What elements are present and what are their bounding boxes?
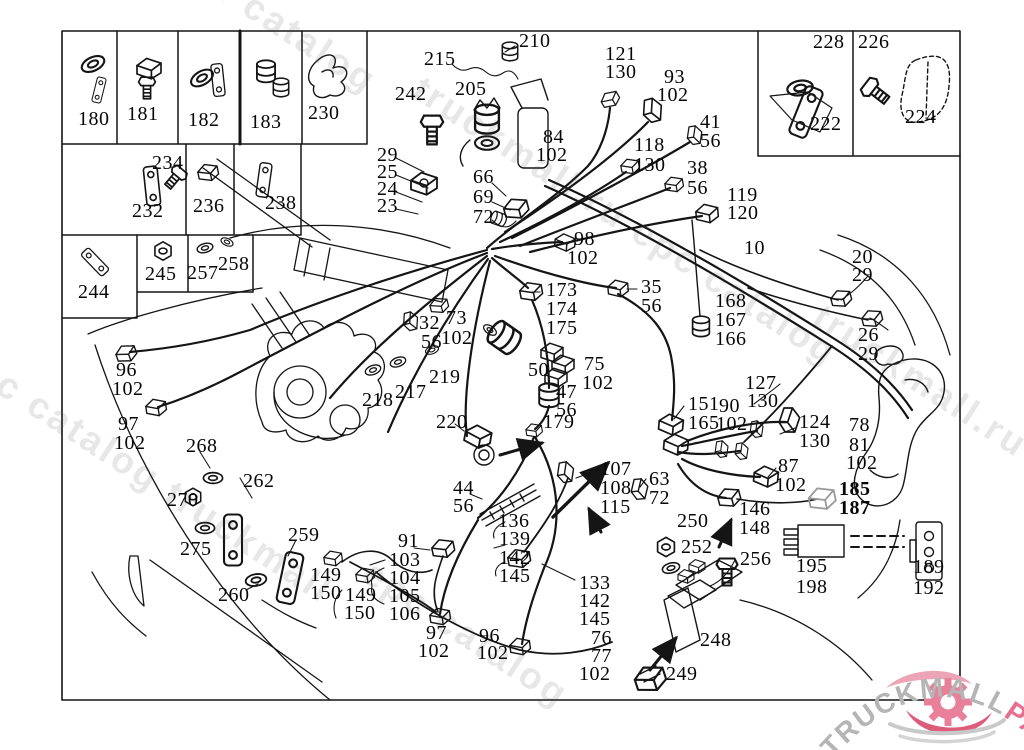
- part-label-249: 249: [666, 664, 698, 684]
- part-label-73: 73: [446, 308, 467, 328]
- part-label-102: 102: [536, 145, 568, 165]
- part-label-175: 175: [546, 318, 578, 338]
- part-label-106: 106: [389, 604, 421, 624]
- part-label-173: 173: [546, 280, 578, 300]
- part-label-181: 181: [127, 104, 159, 124]
- part-label-139: 139: [499, 529, 531, 549]
- part-label-107: 107: [600, 459, 632, 479]
- part-label-180: 180: [78, 109, 110, 129]
- part-label-275: 275: [180, 539, 212, 559]
- part-label-268: 268: [186, 436, 218, 456]
- part-label-145: 145: [499, 566, 531, 586]
- part-label-35: 35: [641, 277, 662, 297]
- part-label-224: 224: [905, 107, 937, 127]
- part-label-120: 120: [727, 203, 759, 223]
- part-label-32: 32: [419, 313, 440, 333]
- part-label-189: 189: [913, 557, 945, 577]
- part-label-124: 124: [799, 412, 831, 432]
- part-label-130: 130: [799, 431, 831, 451]
- part-label-222: 222: [810, 114, 842, 134]
- part-label-228: 228: [813, 32, 845, 52]
- part-label-102: 102: [567, 248, 599, 268]
- part-label-23: 23: [377, 196, 398, 216]
- part-label-183: 183: [250, 112, 282, 132]
- part-label-87: 87: [778, 456, 799, 476]
- part-label-78: 78: [849, 415, 870, 435]
- part-label-102: 102: [418, 641, 450, 661]
- part-label-260: 260: [218, 585, 250, 605]
- part-label-218: 218: [362, 390, 394, 410]
- part-label-130: 130: [605, 62, 637, 82]
- part-label-56: 56: [700, 131, 721, 151]
- part-label-102: 102: [114, 433, 146, 453]
- part-label-66: 66: [473, 167, 494, 187]
- part-label-165: 165: [688, 413, 720, 433]
- part-label-102: 102: [112, 379, 144, 399]
- part-label-29: 29: [858, 344, 879, 364]
- part-label-145: 145: [579, 609, 611, 629]
- part-label-10: 10: [744, 238, 765, 258]
- part-label-72: 72: [473, 207, 494, 227]
- part-label-102: 102: [441, 328, 473, 348]
- part-label-234: 234: [152, 153, 184, 173]
- part-label-115: 115: [600, 497, 631, 517]
- part-label-102: 102: [582, 373, 614, 393]
- part-label-56: 56: [641, 296, 662, 316]
- part-label-102: 102: [579, 664, 611, 684]
- part-label-102: 102: [846, 453, 878, 473]
- part-label-187: 187: [839, 498, 871, 518]
- part-label-108: 108: [600, 478, 632, 498]
- part-label-185: 185: [839, 479, 871, 499]
- part-label-252: 252: [681, 537, 713, 557]
- part-label-130: 130: [747, 391, 779, 411]
- part-label-220: 220: [436, 412, 468, 432]
- part-label-248: 248: [700, 630, 732, 650]
- part-label-174: 174: [546, 299, 578, 319]
- part-label-118: 118: [634, 135, 665, 155]
- part-number-labels-layer: 1801811821832302342322362382442452572582…: [0, 0, 1024, 750]
- diagram-page: TRUCKMALLPARTS epc catalogtruckmall.ru e…: [0, 0, 1024, 750]
- part-label-217: 217: [395, 382, 427, 402]
- part-label-75: 75: [584, 354, 605, 374]
- part-label-146: 146: [739, 499, 771, 519]
- part-label-29: 29: [852, 265, 873, 285]
- part-label-215: 215: [424, 49, 456, 69]
- part-label-91: 91: [398, 531, 419, 551]
- part-label-102: 102: [775, 475, 807, 495]
- part-label-205: 205: [455, 79, 487, 99]
- part-label-50: 50: [528, 360, 549, 380]
- part-label-102: 102: [716, 414, 748, 434]
- part-label-236: 236: [193, 196, 225, 216]
- part-label-63: 63: [649, 469, 670, 489]
- part-label-97: 97: [118, 414, 139, 434]
- part-label-102: 102: [657, 85, 689, 105]
- part-label-258: 258: [218, 254, 250, 274]
- part-label-226: 226: [858, 32, 890, 52]
- part-label-195: 195: [796, 556, 828, 576]
- part-label-98: 98: [574, 229, 595, 249]
- part-label-56: 56: [421, 332, 442, 352]
- part-label-256: 256: [740, 549, 772, 569]
- part-label-219: 219: [429, 367, 461, 387]
- part-label-262: 262: [243, 471, 275, 491]
- part-label-230: 230: [308, 103, 340, 123]
- part-label-257: 257: [187, 263, 219, 283]
- part-label-250: 250: [677, 511, 709, 531]
- part-label-148: 148: [739, 518, 771, 538]
- part-label-56: 56: [687, 178, 708, 198]
- part-label-38: 38: [687, 158, 708, 178]
- part-label-150: 150: [344, 603, 376, 623]
- part-label-244: 244: [78, 282, 110, 302]
- part-label-96: 96: [116, 360, 137, 380]
- part-label-232: 232: [132, 201, 164, 221]
- part-label-242: 242: [395, 84, 427, 104]
- part-label-167: 167: [715, 310, 747, 330]
- part-label-41: 41: [700, 112, 721, 132]
- part-label-259: 259: [288, 525, 320, 545]
- part-label-179: 179: [543, 412, 575, 432]
- part-label-72: 72: [649, 488, 670, 508]
- part-label-192: 192: [913, 578, 945, 598]
- part-label-182: 182: [188, 110, 220, 130]
- part-label-210: 210: [519, 31, 551, 51]
- part-label-130: 130: [634, 155, 666, 175]
- part-label-102: 102: [477, 643, 509, 663]
- part-label-198: 198: [796, 577, 828, 597]
- part-label-270: 270: [167, 490, 199, 510]
- part-label-26: 26: [858, 325, 879, 345]
- part-label-151: 151: [688, 394, 720, 414]
- part-label-69: 69: [473, 187, 494, 207]
- part-label-150: 150: [310, 583, 342, 603]
- part-label-166: 166: [715, 329, 747, 349]
- part-label-168: 168: [715, 291, 747, 311]
- part-label-245: 245: [145, 264, 177, 284]
- part-label-56: 56: [453, 496, 474, 516]
- part-label-238: 238: [265, 193, 297, 213]
